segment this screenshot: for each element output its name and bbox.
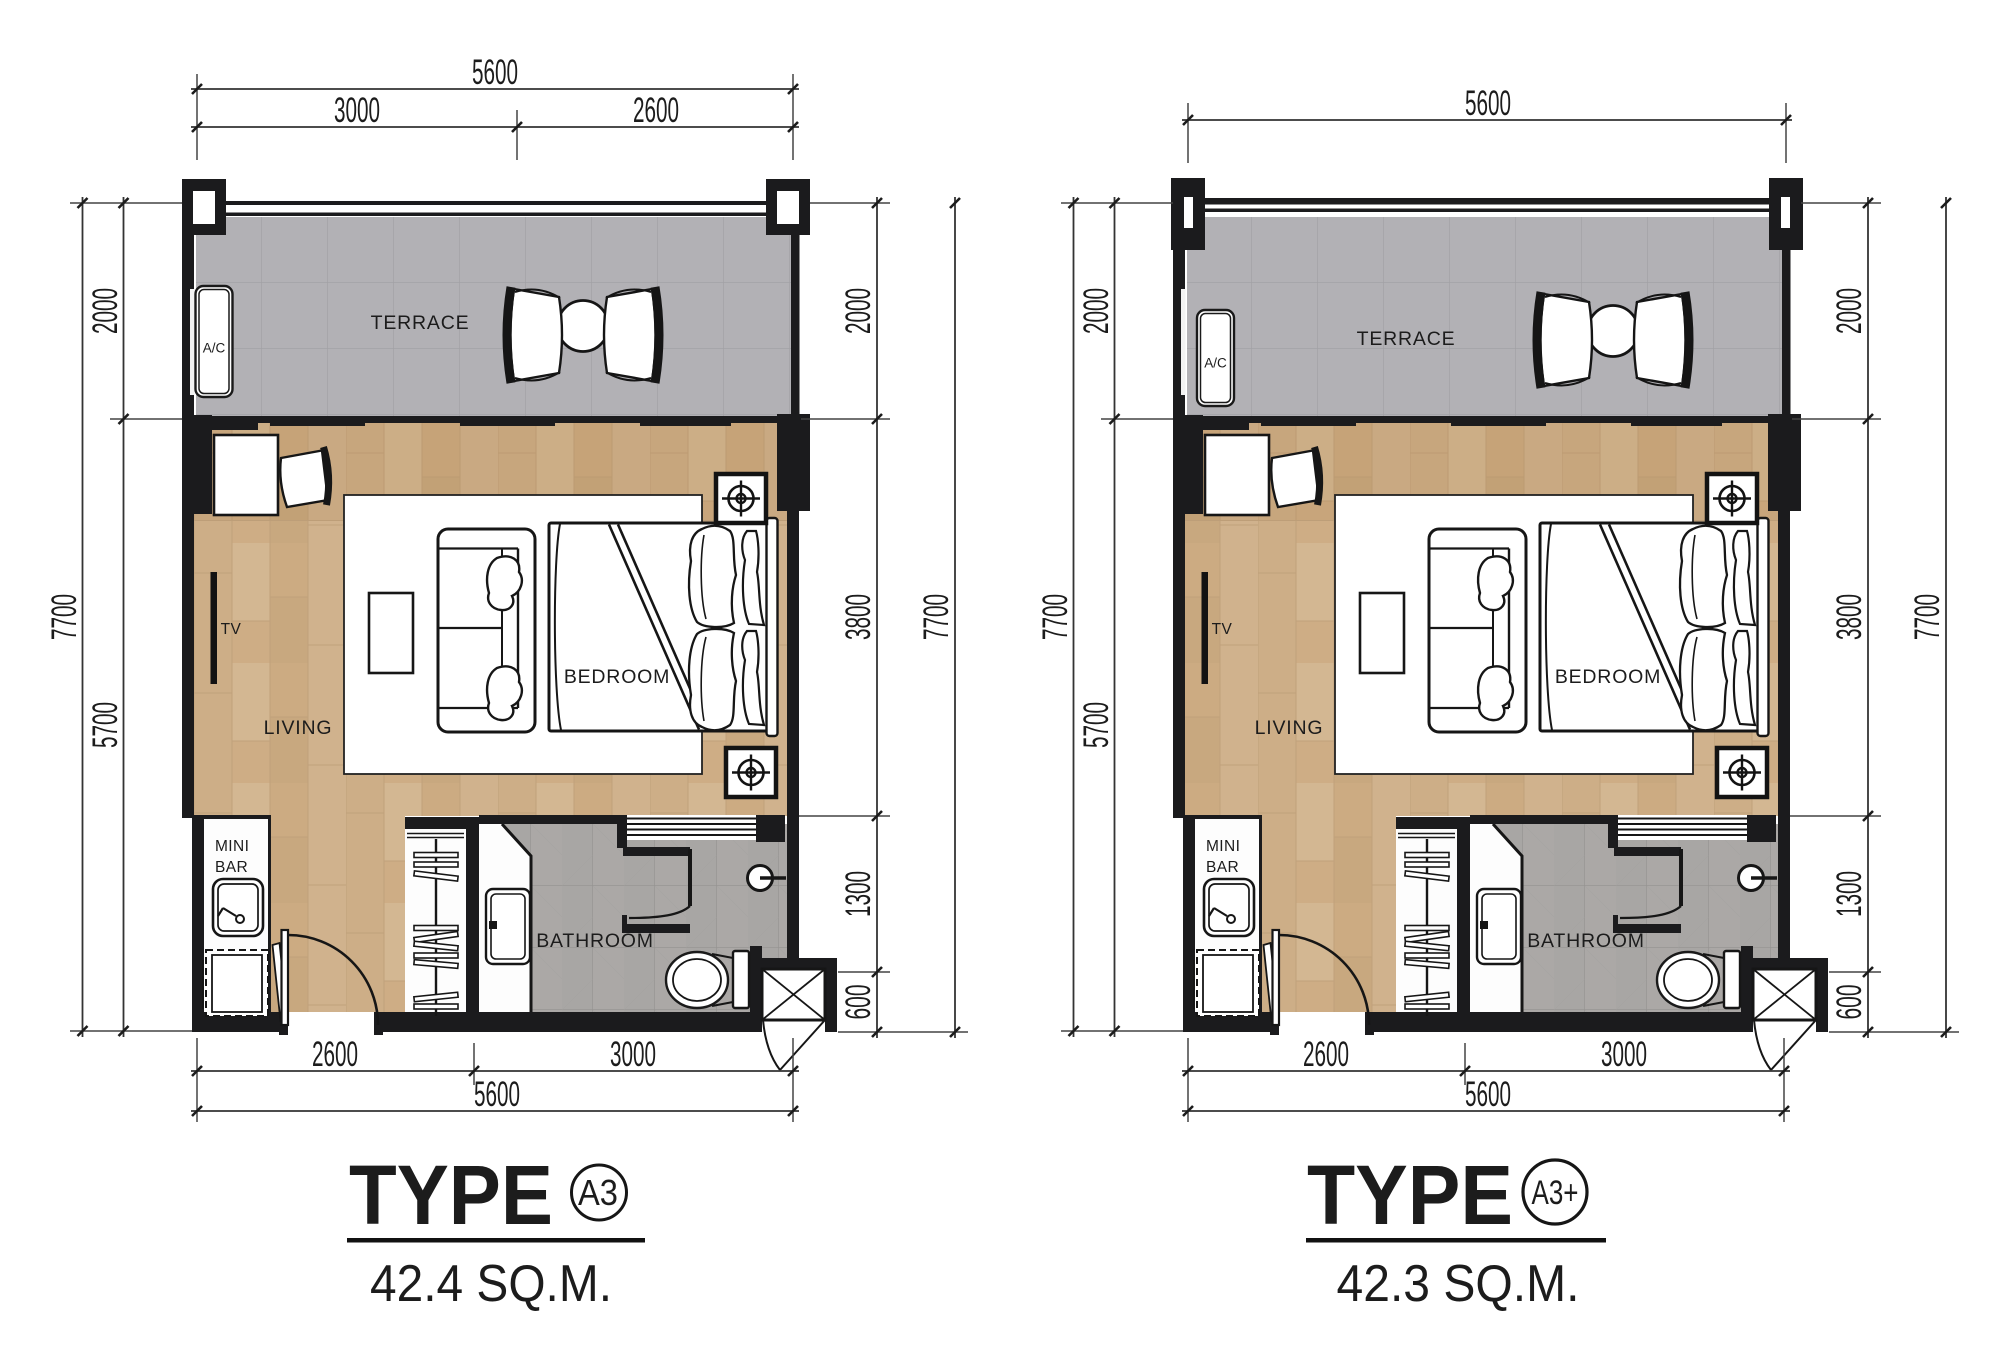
svg-text:42.3 SQ.M.: 42.3 SQ.M. xyxy=(1337,1255,1580,1313)
svg-text:TV: TV xyxy=(221,621,242,638)
svg-text:5600: 5600 xyxy=(472,53,518,92)
svg-text:600: 600 xyxy=(1830,985,1869,1020)
svg-text:1300: 1300 xyxy=(839,871,878,917)
svg-text:A3: A3 xyxy=(578,1172,618,1213)
svg-text:TV: TV xyxy=(1212,621,1233,638)
svg-text:7700: 7700 xyxy=(45,594,84,640)
svg-text:5600: 5600 xyxy=(1465,84,1511,123)
svg-text:5700: 5700 xyxy=(86,702,125,748)
svg-text:3000: 3000 xyxy=(610,1035,656,1074)
svg-text:3800: 3800 xyxy=(1830,594,1869,640)
svg-text:TYPE: TYPE xyxy=(349,1148,553,1242)
svg-text:7700: 7700 xyxy=(1908,594,1947,640)
svg-text:BAR: BAR xyxy=(1206,859,1239,876)
svg-text:2600: 2600 xyxy=(312,1035,358,1074)
svg-text:TERRACE: TERRACE xyxy=(1357,328,1456,350)
svg-text:BEDROOM: BEDROOM xyxy=(564,666,670,688)
svg-text:3800: 3800 xyxy=(839,594,878,640)
svg-text:42.4 SQ.M.: 42.4 SQ.M. xyxy=(370,1255,612,1313)
svg-text:TYPE: TYPE xyxy=(1307,1148,1513,1242)
svg-text:1300: 1300 xyxy=(1830,871,1869,917)
svg-text:A/C: A/C xyxy=(1204,356,1227,371)
svg-text:A3+: A3+ xyxy=(1532,1174,1579,1212)
svg-text:3000: 3000 xyxy=(1601,1035,1647,1074)
svg-text:BATHROOM: BATHROOM xyxy=(536,930,654,952)
svg-text:2600: 2600 xyxy=(1303,1035,1349,1074)
svg-text:A/C: A/C xyxy=(203,341,226,356)
svg-text:BATHROOM: BATHROOM xyxy=(1527,930,1645,952)
svg-text:5600: 5600 xyxy=(474,1075,520,1114)
svg-text:2000: 2000 xyxy=(86,288,125,334)
svg-text:BEDROOM: BEDROOM xyxy=(1555,666,1661,688)
svg-text:600: 600 xyxy=(839,985,878,1020)
svg-text:2000: 2000 xyxy=(1077,288,1116,334)
svg-text:2000: 2000 xyxy=(839,288,878,334)
svg-text:5600: 5600 xyxy=(1465,1075,1511,1114)
svg-text:2600: 2600 xyxy=(633,91,679,130)
svg-text:BAR: BAR xyxy=(215,859,248,876)
svg-text:2000: 2000 xyxy=(1830,288,1869,334)
svg-text:LIVING: LIVING xyxy=(1255,717,1324,739)
svg-text:7700: 7700 xyxy=(1036,594,1075,640)
svg-text:7700: 7700 xyxy=(917,594,956,640)
svg-text:TERRACE: TERRACE xyxy=(371,312,470,334)
svg-text:LIVING: LIVING xyxy=(264,717,333,739)
svg-text:MINI: MINI xyxy=(215,838,249,855)
svg-text:5700: 5700 xyxy=(1077,702,1116,748)
svg-text:MINI: MINI xyxy=(1206,838,1240,855)
svg-text:3000: 3000 xyxy=(334,91,380,130)
